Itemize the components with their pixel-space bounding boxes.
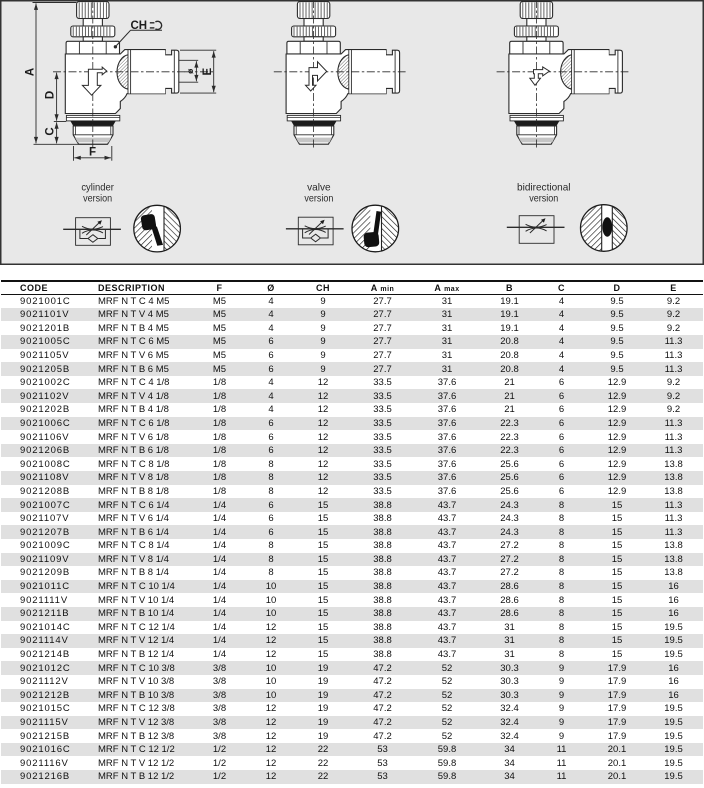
svg-text:F: F [89, 147, 96, 159]
svg-text:D: D [45, 91, 57, 99]
svg-text:ø: ø [185, 68, 195, 74]
svg-text:version: version [83, 193, 112, 205]
svg-text:version: version [304, 193, 333, 205]
svg-text:CH: CH [131, 20, 148, 32]
svg-text:version: version [529, 193, 558, 205]
svg-text:E: E [202, 67, 214, 75]
svg-text:C: C [45, 127, 57, 135]
svg-text:A: A [25, 68, 37, 76]
